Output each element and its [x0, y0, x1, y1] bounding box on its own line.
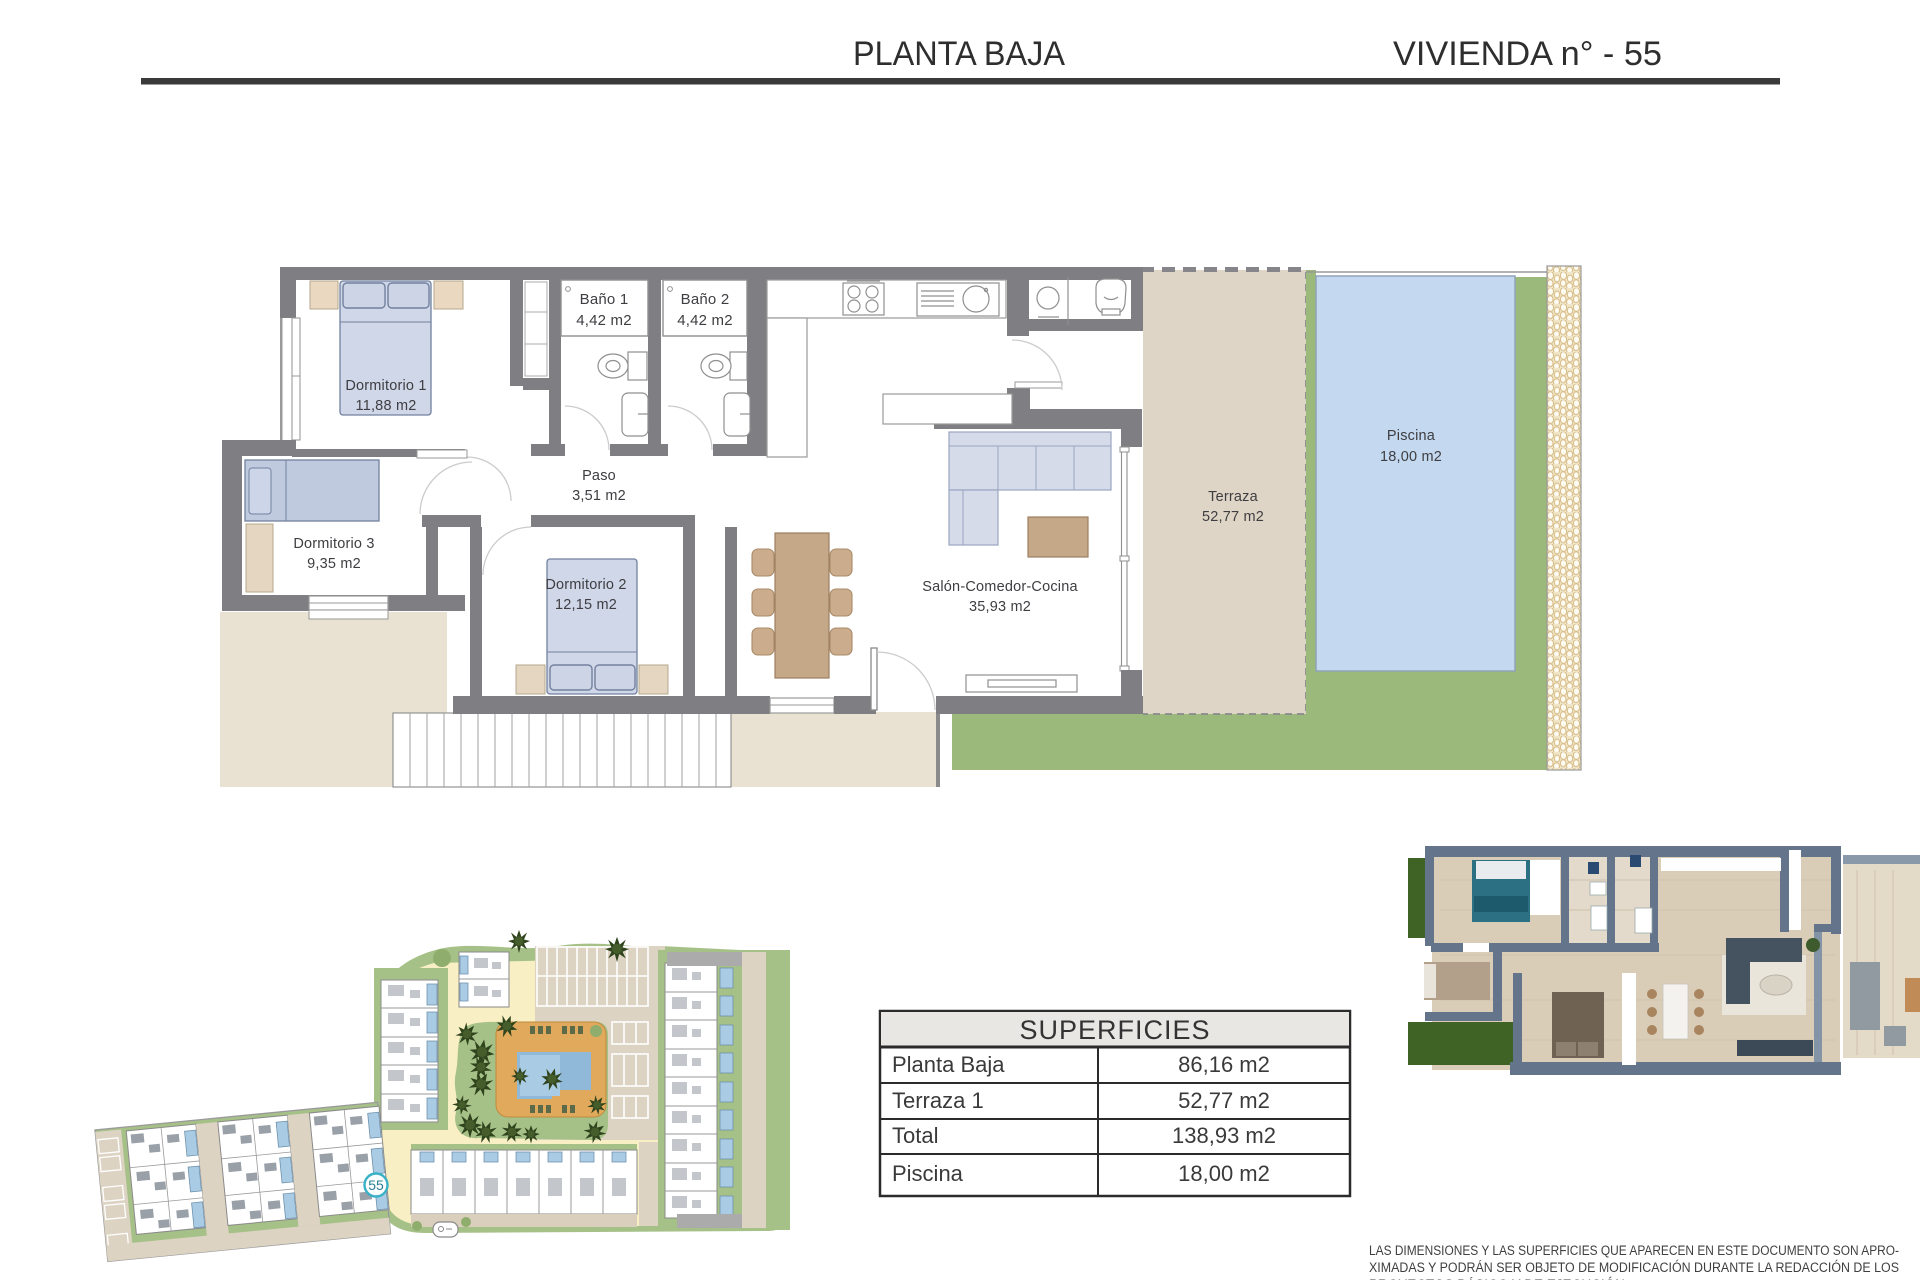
- svg-text:3,51 m2: 3,51 m2: [572, 488, 626, 504]
- svg-text:Piscina: Piscina: [1387, 428, 1436, 444]
- svg-text:Baño 1: Baño 1: [580, 291, 629, 308]
- svg-text:12,15 m2: 12,15 m2: [555, 597, 617, 613]
- svg-text:Dormitorio 3: Dormitorio 3: [293, 536, 374, 552]
- svg-text:11,88 m2: 11,88 m2: [356, 398, 417, 414]
- svg-text:Paso: Paso: [582, 468, 616, 484]
- svg-text:86,16 m2: 86,16 m2: [1178, 1052, 1270, 1077]
- svg-text:Terraza 1: Terraza 1: [892, 1088, 984, 1113]
- svg-text:138,93 m2: 138,93 m2: [1172, 1123, 1276, 1148]
- svg-text:52,77 m2: 52,77 m2: [1178, 1088, 1270, 1113]
- svg-text:LAS DIMENSIONES Y LAS SUPERFIC: LAS DIMENSIONES Y LAS SUPERFICIES QUE AP…: [1369, 1243, 1899, 1258]
- svg-text:18,00 m2: 18,00 m2: [1380, 449, 1442, 465]
- svg-text:35,93 m2: 35,93 m2: [969, 599, 1031, 615]
- svg-text:55: 55: [368, 1177, 384, 1193]
- svg-text:Dormitorio 2: Dormitorio 2: [545, 577, 626, 593]
- svg-text:Baño 2: Baño 2: [681, 291, 730, 308]
- svg-text:VIVIENDA n° - 55: VIVIENDA n° - 55: [1393, 35, 1662, 73]
- svg-text:Total: Total: [892, 1123, 938, 1148]
- svg-text:52,77 m2: 52,77 m2: [1202, 509, 1264, 525]
- svg-text:4,42 m2: 4,42 m2: [576, 312, 632, 329]
- svg-text:Piscina: Piscina: [892, 1161, 964, 1186]
- svg-text:Planta Baja: Planta Baja: [892, 1052, 1005, 1077]
- svg-text:9,35 m2: 9,35 m2: [307, 556, 361, 572]
- svg-text:SUPERFICIES: SUPERFICIES: [1019, 1015, 1210, 1045]
- svg-text:XIMADAS Y PODRÁN SER OBJETO DE: XIMADAS Y PODRÁN SER OBJETO DE MODIFICAC…: [1369, 1260, 1899, 1275]
- svg-text:18,00 m2: 18,00 m2: [1178, 1161, 1270, 1186]
- svg-text:PLANTA BAJA: PLANTA BAJA: [853, 35, 1065, 73]
- svg-text:Salón-Comedor-Cocina: Salón-Comedor-Cocina: [922, 579, 1078, 595]
- svg-text:Terraza: Terraza: [1208, 489, 1258, 505]
- svg-text:4,42 m2: 4,42 m2: [677, 312, 733, 329]
- svg-text:Dormitorio 1: Dormitorio 1: [345, 378, 426, 394]
